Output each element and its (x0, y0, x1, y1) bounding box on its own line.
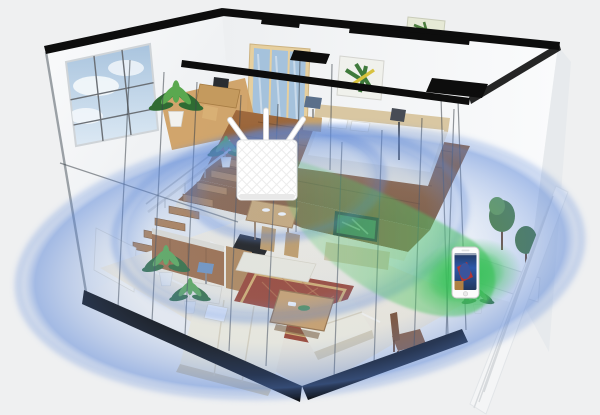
phone-home-button (463, 292, 467, 296)
phone-earpiece (462, 250, 470, 252)
window (66, 44, 158, 146)
phone-screen (455, 253, 477, 290)
router-body (237, 140, 297, 200)
smartphone (452, 247, 479, 298)
scene-canvas (0, 0, 600, 415)
illustration (0, 0, 600, 415)
phone-status-bar (455, 253, 477, 255)
router-antenna (264, 108, 269, 144)
wall-art-large (337, 56, 384, 100)
